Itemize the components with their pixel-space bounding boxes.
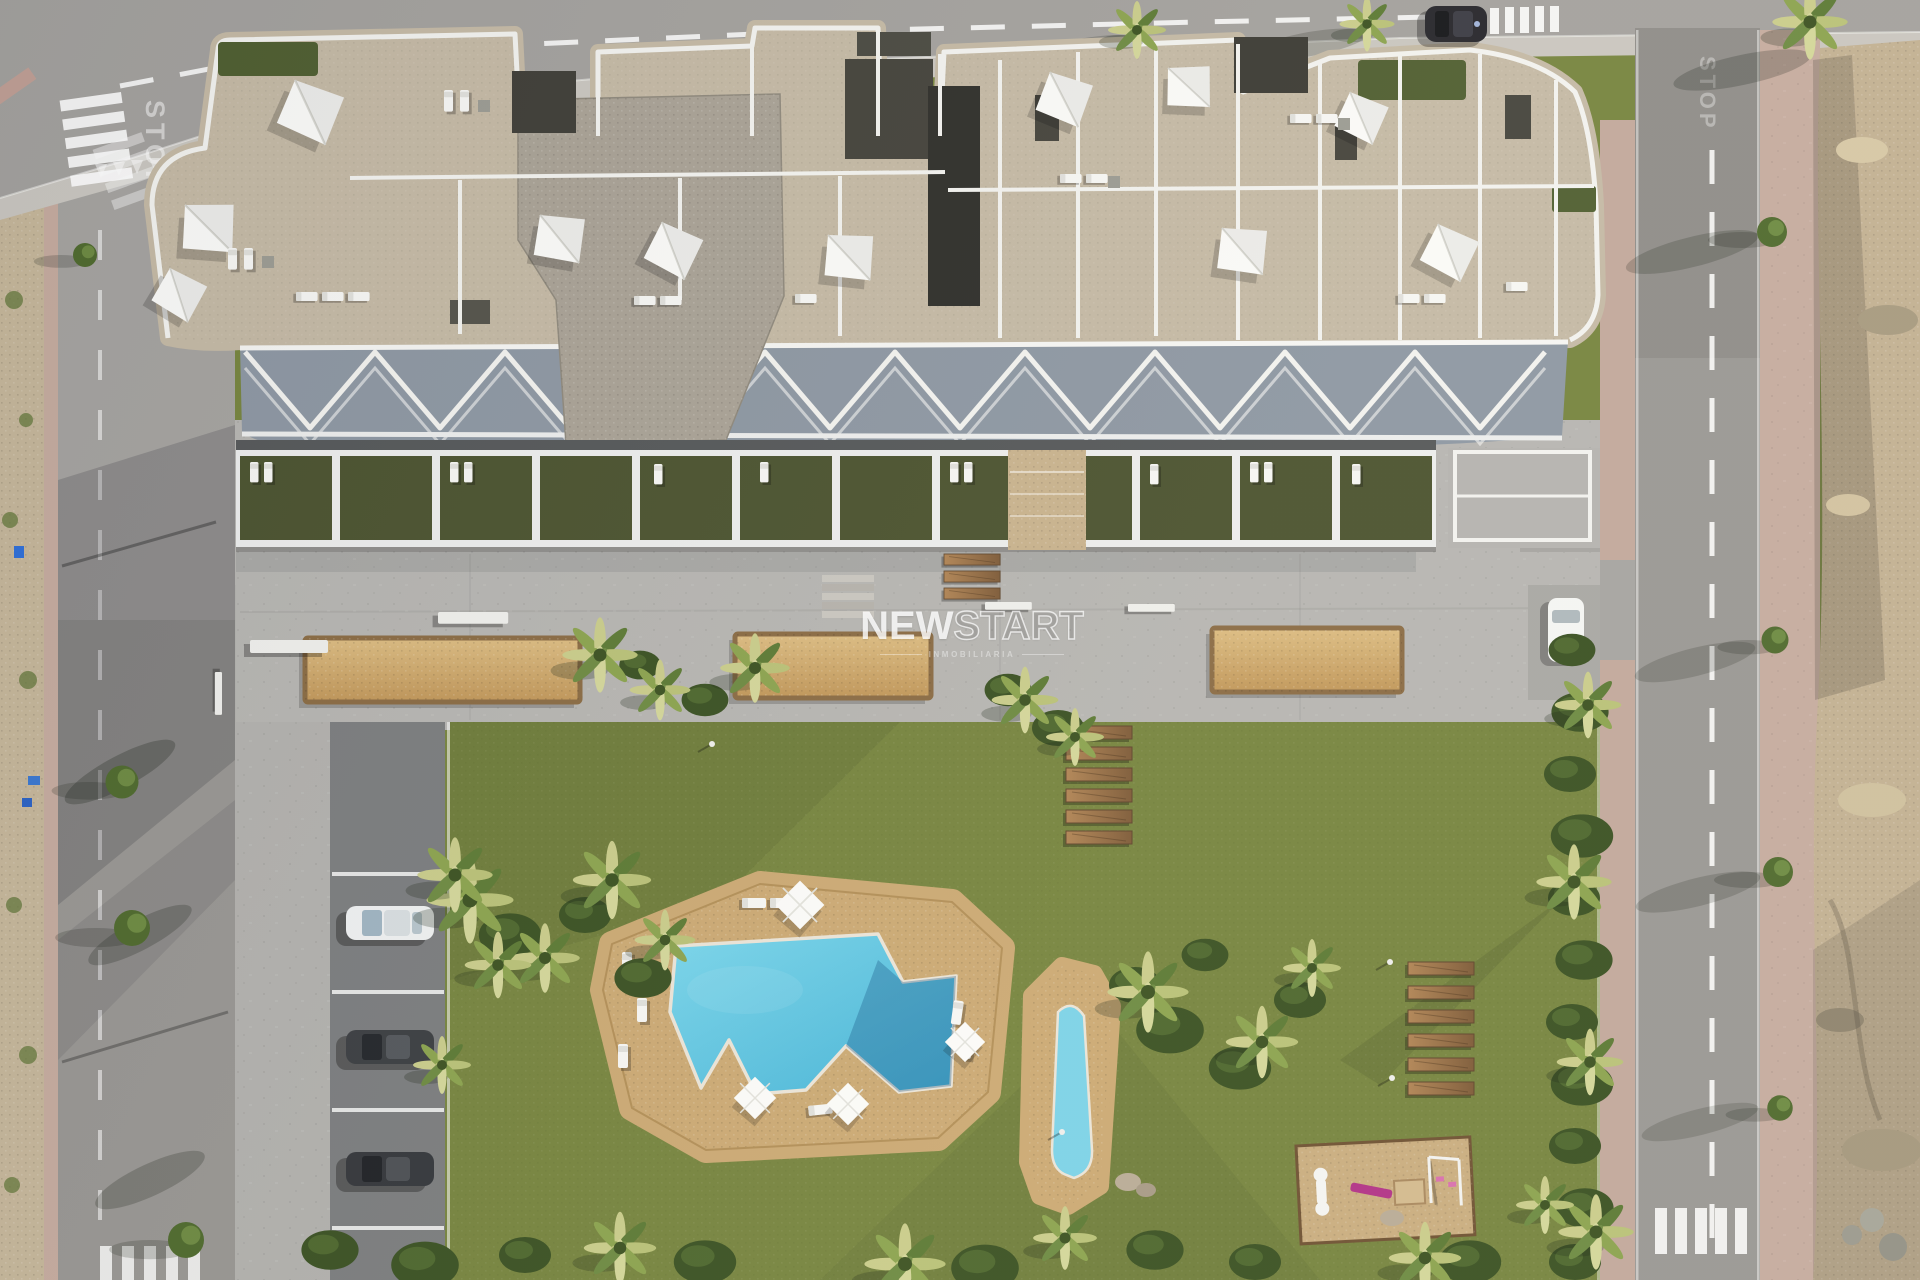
sandbox (1394, 1179, 1425, 1205)
kids-pool-water (1052, 1006, 1092, 1178)
seesaw (1316, 1178, 1327, 1204)
promenade-steps (822, 575, 874, 618)
apartment-building (139, 28, 1598, 457)
scene-canvas: STOP STOP (0, 0, 1920, 1280)
playground (1296, 1137, 1475, 1244)
kids-pool (1028, 966, 1112, 1206)
left-sidewalk (44, 190, 58, 1280)
car-dark-2 (336, 1152, 434, 1192)
sand-planters (299, 628, 1402, 708)
building-entrance-path (1008, 450, 1086, 550)
promenade (213, 552, 1600, 722)
suv-dark-top-road (1417, 6, 1487, 47)
entrance-wood-benches (941, 554, 1000, 602)
aerial-render-scene: STOP STOP (0, 0, 1920, 1280)
